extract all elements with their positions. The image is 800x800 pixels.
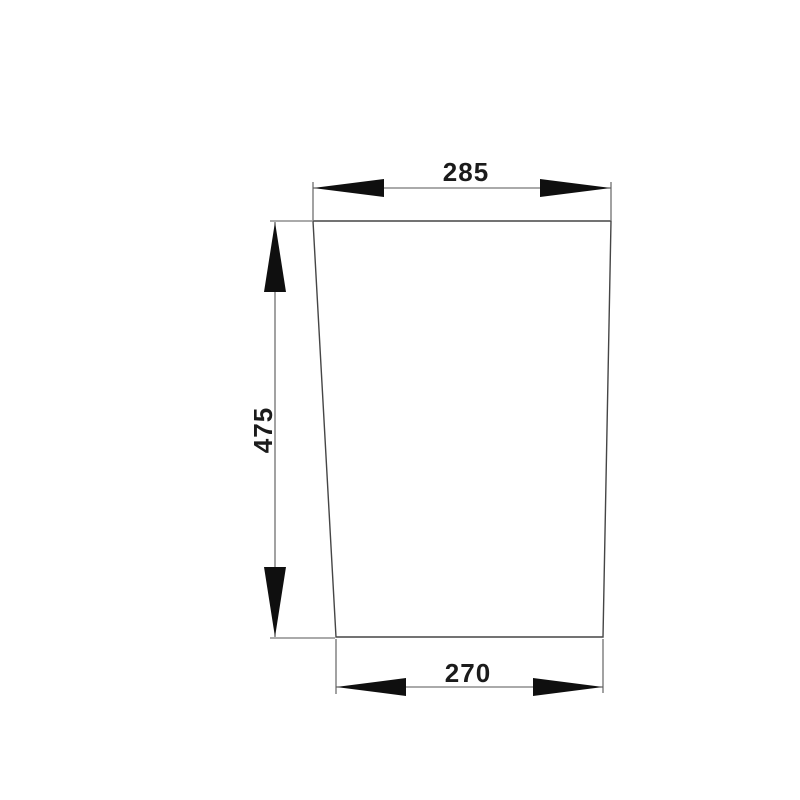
arrowhead-down-icon — [264, 567, 286, 637]
arrowhead-right-icon — [533, 678, 603, 696]
arrowhead-left-icon — [313, 179, 384, 197]
dimension-top: 285 — [313, 157, 611, 220]
technical-drawing-canvas: 285 475 270 — [0, 0, 800, 800]
dimension-label-top: 285 — [443, 157, 489, 187]
arrowhead-left-icon — [336, 678, 406, 696]
dimension-bottom: 270 — [336, 639, 603, 696]
dimension-label-left: 475 — [248, 407, 278, 453]
panel-outline — [313, 221, 611, 637]
arrowhead-right-icon — [540, 179, 611, 197]
drawing-page: 285 475 270 — [0, 0, 800, 800]
arrowhead-up-icon — [264, 222, 286, 292]
dimension-label-bottom: 270 — [445, 658, 491, 688]
